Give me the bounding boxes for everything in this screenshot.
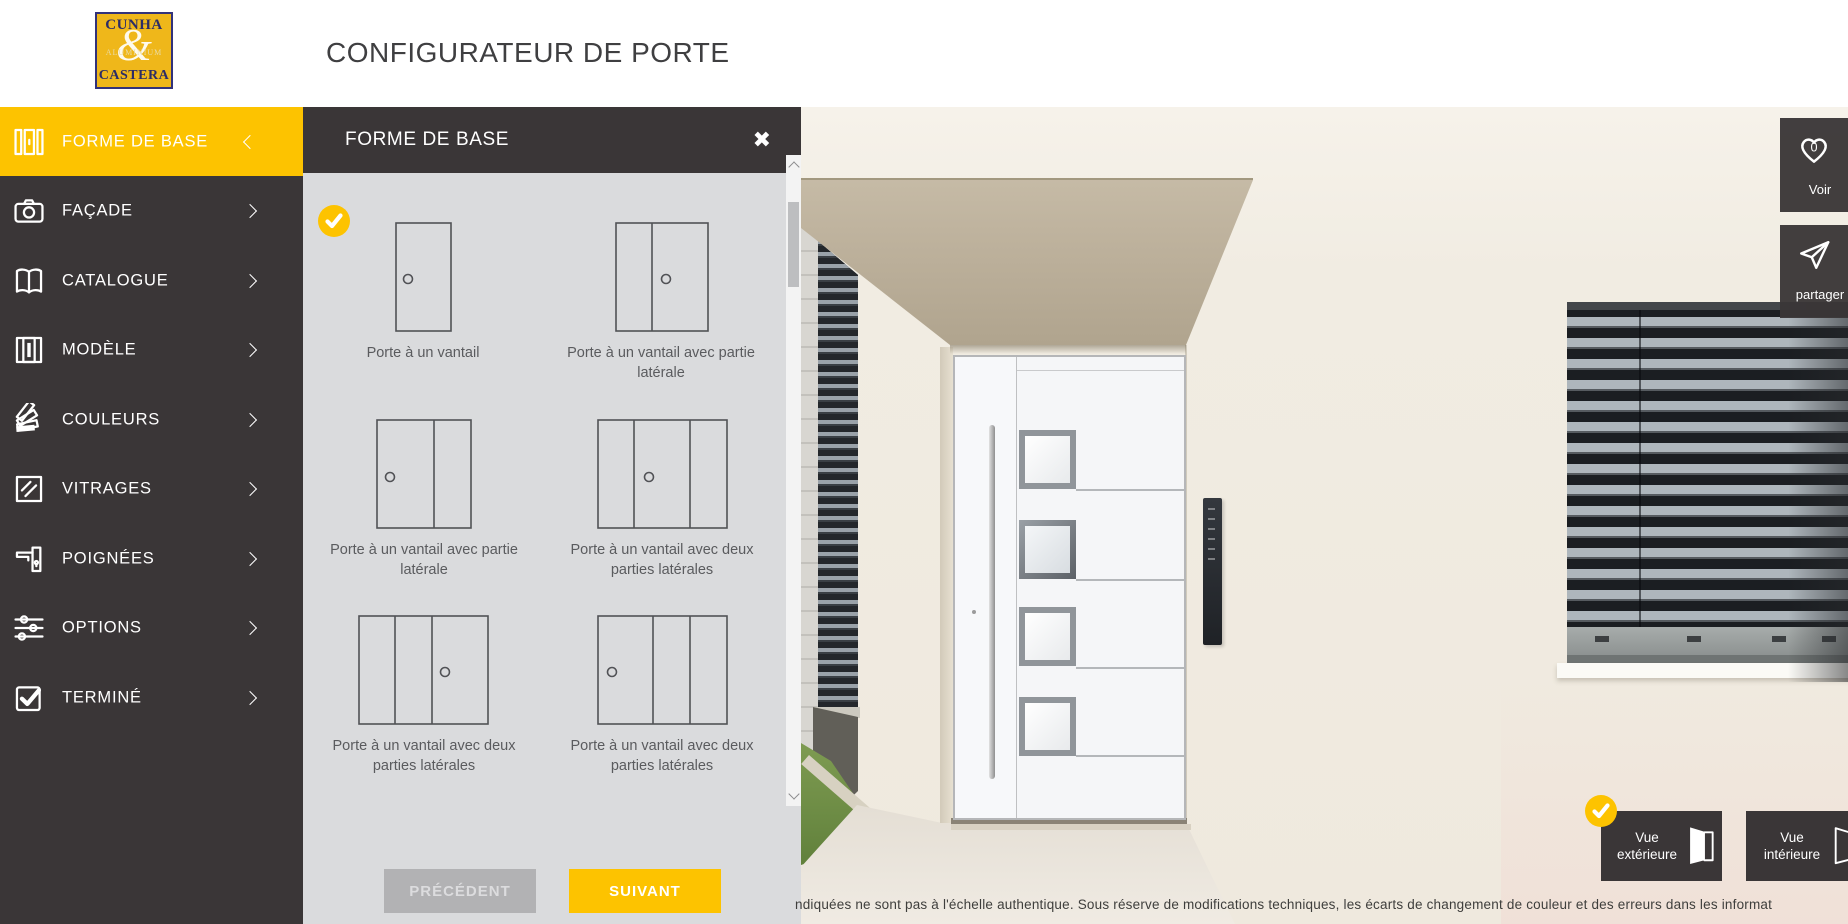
forme-de-base-panel: FORME DE BASE ✖ Porte à un vantail Porte… xyxy=(303,107,801,924)
door-glass-2 xyxy=(1019,520,1076,579)
sidebar-item-label: CATALOGUE xyxy=(62,271,169,290)
scrollbar-thumb[interactable] xyxy=(788,202,799,287)
panel-scrollbar[interactable] xyxy=(786,155,801,806)
chevron-right-icon xyxy=(243,342,257,356)
paper-plane-icon xyxy=(1795,237,1833,273)
sidebar-item-couleurs[interactable]: COULEURS xyxy=(0,385,303,454)
exterior-view-label: Vue extérieure xyxy=(1611,829,1683,863)
door-option-1-diagram[interactable] xyxy=(395,222,453,333)
favorites-label: Voir xyxy=(1780,182,1848,197)
louvered-window-left xyxy=(818,228,858,712)
sidebar-item-label: FAÇADE xyxy=(62,201,133,220)
panel-header: FORME DE BASE ✖ xyxy=(303,107,801,173)
share-button[interactable]: partager xyxy=(1780,225,1848,318)
next-button[interactable]: SUIVANT xyxy=(569,869,721,913)
sidebar-item-label: COULEURS xyxy=(62,410,160,429)
previous-button[interactable]: PRÉCÉDENT xyxy=(384,869,536,913)
logo-ampersand: & xyxy=(97,22,171,68)
sidebar-item-modele[interactable]: MODÈLE xyxy=(0,315,303,384)
scroll-up-icon[interactable] xyxy=(788,161,799,172)
view-selected-badge xyxy=(1585,795,1617,827)
door-option-label[interactable]: Porte à un vantail avec deux parties lat… xyxy=(326,736,522,776)
open-book-icon xyxy=(12,264,46,298)
chevron-right-icon xyxy=(243,273,257,287)
door-option-2-diagram[interactable] xyxy=(615,222,710,333)
door-glass-1 xyxy=(1019,430,1076,489)
door-groove xyxy=(1076,579,1184,581)
color-fan-icon xyxy=(12,403,46,437)
sidebar-item-forme-de-base[interactable]: FORME DE BASE xyxy=(0,107,303,176)
sidebar-item-label: FORME DE BASE xyxy=(62,132,208,151)
sidebar-item-label: TERMINÉ xyxy=(62,688,142,707)
sidebar-item-label: VITRAGES xyxy=(62,479,152,498)
wall-tint xyxy=(1501,682,1848,924)
page-title: CONFIGURATEUR DE PORTE xyxy=(326,37,730,69)
interior-view-button[interactable]: Vue intérieure xyxy=(1746,811,1848,881)
sidebar-item-poignees[interactable]: POIGNÉES xyxy=(0,524,303,593)
door-shape-icon xyxy=(12,125,46,159)
door-outline-icon xyxy=(1825,824,1848,868)
door-option-3-diagram[interactable] xyxy=(376,419,473,530)
panel-title: FORME DE BASE xyxy=(345,129,509,151)
chevron-right-icon xyxy=(243,551,257,565)
chevron-right-icon xyxy=(243,690,257,704)
configured-door xyxy=(953,355,1186,820)
ceiling-overhang xyxy=(801,107,1253,345)
disclaimer-text: ndiquées ne sont pas à l'échelle authent… xyxy=(795,897,1848,919)
door-glass-3 xyxy=(1019,607,1076,666)
door-option-label[interactable]: Porte à un vantail avec deux parties lat… xyxy=(564,540,760,580)
camera-icon xyxy=(12,194,46,228)
close-icon[interactable]: ✖ xyxy=(753,129,771,151)
blind-cord xyxy=(1639,310,1641,627)
sidebar-item-catalogue[interactable]: CATALOGUE xyxy=(0,246,303,315)
glass-pane-icon xyxy=(12,472,46,506)
top-bar: CUNHA & ALUMINIUM CASTERA CONFIGURATEUR … xyxy=(0,0,1848,107)
sidebar-item-label: MODÈLE xyxy=(62,340,136,359)
door-handle-bar xyxy=(989,425,995,779)
chevron-right-icon xyxy=(243,481,257,495)
sidebar-nav: FORME DE BASE FAÇADE CATALOGUE MODÈLE xyxy=(0,107,303,924)
recess-left-jamb xyxy=(940,347,953,823)
sidebar-item-facade[interactable]: FAÇADE xyxy=(0,176,303,245)
door-stile xyxy=(955,357,1017,818)
sidebar-item-label: POIGNÉES xyxy=(62,549,155,568)
door-option-4-diagram[interactable] xyxy=(597,419,729,530)
checkbox-icon xyxy=(12,681,46,715)
door-option-label[interactable]: Porte à un vantail avec partie latérale xyxy=(326,540,522,580)
chevron-right-icon xyxy=(243,620,257,634)
door-option-5-diagram[interactable] xyxy=(358,615,490,726)
door-groove xyxy=(1076,489,1184,491)
overhang-shadow xyxy=(950,345,1186,354)
sidebar-item-termine[interactable]: TERMINÉ xyxy=(0,663,303,732)
company-logo: CUNHA & ALUMINIUM CASTERA xyxy=(95,12,173,89)
sidebar-item-vitrages[interactable]: VITRAGES xyxy=(0,454,303,523)
door-option-6-diagram[interactable] xyxy=(597,615,729,726)
door-step xyxy=(951,824,1191,830)
svg-text:0: 0 xyxy=(1810,141,1817,155)
door-option-label[interactable]: Porte à un vantail avec deux parties lat… xyxy=(564,736,760,776)
door-preview-scene xyxy=(801,107,1848,924)
logo-line2: ALUMINIUM xyxy=(97,48,171,57)
stone-wall-strip xyxy=(801,228,818,756)
share-label: partager xyxy=(1780,287,1848,302)
door-handle-icon xyxy=(12,542,46,576)
chevron-right-icon xyxy=(243,412,257,426)
door-glass-4 xyxy=(1019,697,1076,756)
door-top-groove xyxy=(1017,370,1184,371)
heart-icon: 0 xyxy=(1794,130,1834,168)
door-panel-icon xyxy=(12,333,46,367)
door-option-label[interactable]: Porte à un vantail xyxy=(325,343,521,363)
door-groove xyxy=(1076,667,1184,669)
logo-line3: CASTERA xyxy=(97,68,171,84)
door-keyhole xyxy=(972,610,976,614)
exterior-view-button[interactable]: Vue extérieure xyxy=(1601,811,1722,881)
interior-view-label: Vue intérieure xyxy=(1756,829,1828,863)
favorites-button[interactable]: 0 Voir xyxy=(1780,118,1848,212)
selected-check-badge xyxy=(318,205,350,237)
door-groove xyxy=(1076,755,1184,757)
window-shadow xyxy=(1788,302,1848,682)
open-door-icon xyxy=(1680,824,1718,868)
sidebar-item-options[interactable]: OPTIONS xyxy=(0,593,303,662)
intercom-keypad xyxy=(1203,498,1222,645)
door-option-label[interactable]: Porte à un vantail avec partie latérale xyxy=(563,343,759,383)
chevron-left-icon xyxy=(243,134,257,148)
overhang-edge-line xyxy=(801,178,1253,180)
chevron-right-icon xyxy=(243,203,257,217)
door-configurator-app: CUNHA & ALUMINIUM CASTERA CONFIGURATEUR … xyxy=(0,0,1848,924)
sliders-icon xyxy=(12,611,46,645)
venetian-blind-window xyxy=(1567,302,1848,682)
scroll-down-icon[interactable] xyxy=(788,788,799,799)
sidebar-item-label: OPTIONS xyxy=(62,618,142,637)
